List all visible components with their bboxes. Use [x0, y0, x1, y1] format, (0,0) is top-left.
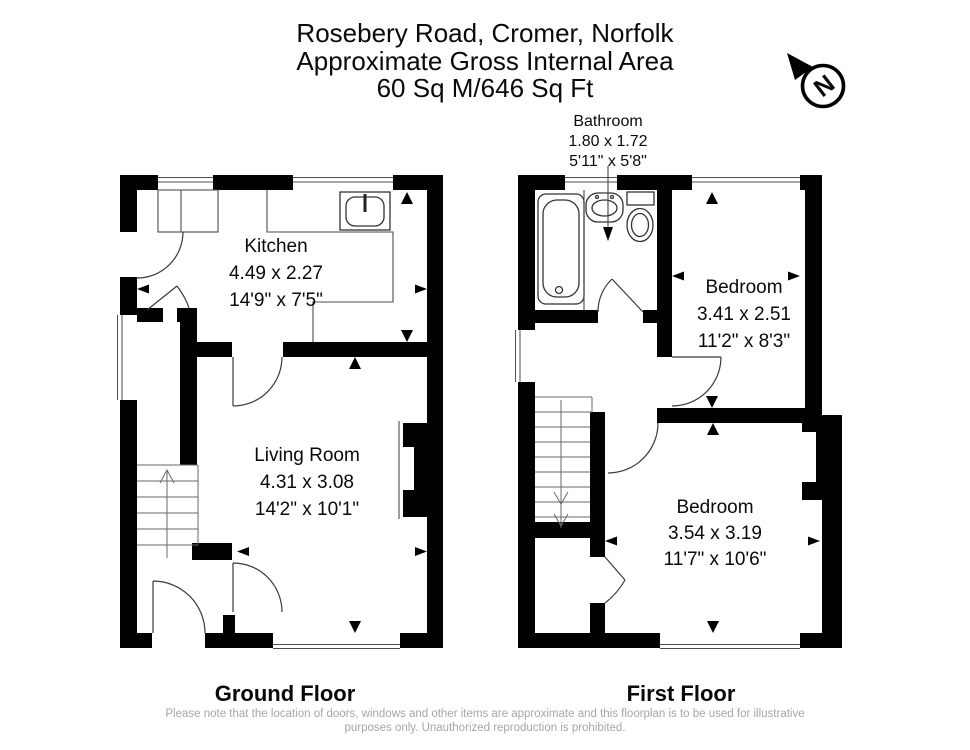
ground-staircase — [137, 465, 198, 558]
bedroom1-label: Bedroom 3.41 x 2.51 11'2" x 8'3" — [697, 277, 791, 352]
bathroom-metric: 1.80 x 1.72 — [568, 133, 647, 150]
floorplan-canvas: Rosebery Road, Cromer, Norfolk Approxima… — [0, 0, 970, 750]
first-floor-caption: First Floor — [627, 681, 736, 706]
north-compass: N — [787, 53, 844, 107]
bathroom-label: Bathroom 1.80 x 1.72 5'11" x 5'8" — [568, 113, 647, 170]
living-room-name: Living Room — [254, 445, 360, 466]
kitchen-label: Kitchen 4.49 x 2.27 14'9" x 7'5" — [229, 236, 323, 311]
ground-floor-plan: Kitchen 4.49 x 2.27 14'9" x 7'5" Living … — [118, 175, 444, 649]
title-line-2: Approximate Gross Internal Area — [296, 46, 674, 76]
title-block: Rosebery Road, Cromer, Norfolk Approxima… — [296, 18, 674, 103]
living-room-imperial: 14'2" x 10'1" — [255, 499, 359, 520]
ground-floor-caption: Ground Floor — [215, 681, 356, 706]
bedroom1-metric: 3.41 x 2.51 — [697, 304, 791, 325]
bathroom-imperial: 5'11" x 5'8" — [569, 153, 647, 170]
bedroom2-label: Bedroom 3.54 x 3.19 11'7" x 10'6" — [664, 497, 767, 570]
footer: Ground Floor First Floor Please note tha… — [165, 681, 804, 734]
bedroom2-imperial: 11'7" x 10'6" — [664, 549, 767, 570]
bathtub — [538, 190, 584, 310]
kitchen-metric: 4.49 x 2.27 — [229, 263, 323, 284]
disclaimer-line-1: Please note that the location of doors, … — [165, 708, 804, 720]
washbasin — [586, 193, 623, 222]
living-room-label: Living Room 4.31 x 3.08 14'2" x 10'1" — [254, 445, 360, 520]
bedroom1-imperial: 11'2" x 8'3" — [698, 331, 790, 352]
fireplace — [399, 421, 427, 519]
north-arrow-icon — [787, 53, 813, 80]
living-room-metric: 4.31 x 3.08 — [260, 472, 354, 493]
first-floor-plan: Bathroom 1.80 x 1.72 5'11" x 5'8" Bedroo… — [516, 113, 843, 649]
kitchen-sink — [340, 192, 390, 230]
kitchen-imperial: 14'9" x 7'5" — [229, 290, 323, 311]
toilet — [627, 192, 654, 242]
bedroom2-name: Bedroom — [676, 497, 753, 518]
first-staircase — [535, 397, 592, 528]
floorplan-page: Rosebery Road, Cromer, Norfolk Approxima… — [0, 0, 970, 750]
bathroom-name: Bathroom — [573, 113, 642, 130]
bedroom1-name: Bedroom — [705, 277, 782, 298]
title-line-1: Rosebery Road, Cromer, Norfolk — [296, 18, 674, 48]
disclaimer-line-2: purposes only. Unauthorized reproduction… — [344, 722, 625, 734]
compass-north-label: N — [809, 70, 840, 103]
first-floor-chimney — [802, 415, 842, 500]
title-line-3: 60 Sq M/646 Sq Ft — [377, 73, 595, 103]
kitchen-name: Kitchen — [244, 236, 307, 257]
bedroom2-metric: 3.54 x 3.19 — [668, 523, 762, 544]
